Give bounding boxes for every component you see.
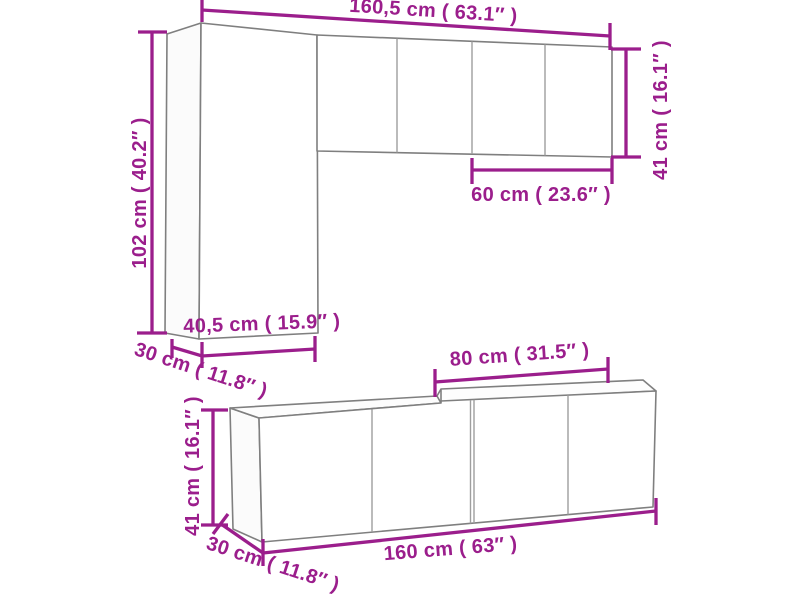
dim-wall-cabinet-height: 41 cm ( 16.1″ ) <box>611 40 672 180</box>
tall-cabinet-side-face <box>165 23 201 339</box>
upper-assembly <box>165 23 612 339</box>
dim-label-wall-cabinet-height: 41 cm ( 16.1″ ) <box>650 40 672 180</box>
dim-line <box>435 369 608 382</box>
tall-cabinet-front-face <box>199 23 318 339</box>
dim-tall-cabinet-width-depth: 40,5 cm ( 15.9″ ) 30 cm ( 11.8″ ) <box>132 310 341 402</box>
dim-tall-cabinet-height: 102 cm ( 40.2″ ) <box>129 32 167 333</box>
dim-wall-cabinet-width: 60 cm ( 23.6″ ) <box>471 158 612 206</box>
diagram-canvas: 160,5 cm ( 63.1″ ) 102 cm ( 40.2″ ) 41 c… <box>0 0 800 600</box>
dim-label-tv-stand-depth: 30 cm ( 11.8″ ) <box>204 532 343 596</box>
dim-label-tv-stand-height: 41 cm ( 16.1″ ) <box>182 396 204 536</box>
dim-label-tv-cabinet-width: 80 cm ( 31.5″ ) <box>449 339 590 371</box>
dim-label-tall-cabinet-height: 102 cm ( 40.2″ ) <box>129 117 151 268</box>
dim-line <box>172 347 315 356</box>
tv-stand-side-face <box>230 408 262 542</box>
dim-label-wall-cabinet-width: 60 cm ( 23.6″ ) <box>471 184 611 206</box>
dim-tv-stand-height: 41 cm ( 16.1″ ) <box>182 396 228 536</box>
tv-stand-front-face <box>259 391 656 542</box>
wall-cabinet-row <box>317 35 612 157</box>
furniture-dimension-diagram: 160,5 cm ( 63.1″ ) 102 cm ( 40.2″ ) 41 c… <box>0 0 800 600</box>
